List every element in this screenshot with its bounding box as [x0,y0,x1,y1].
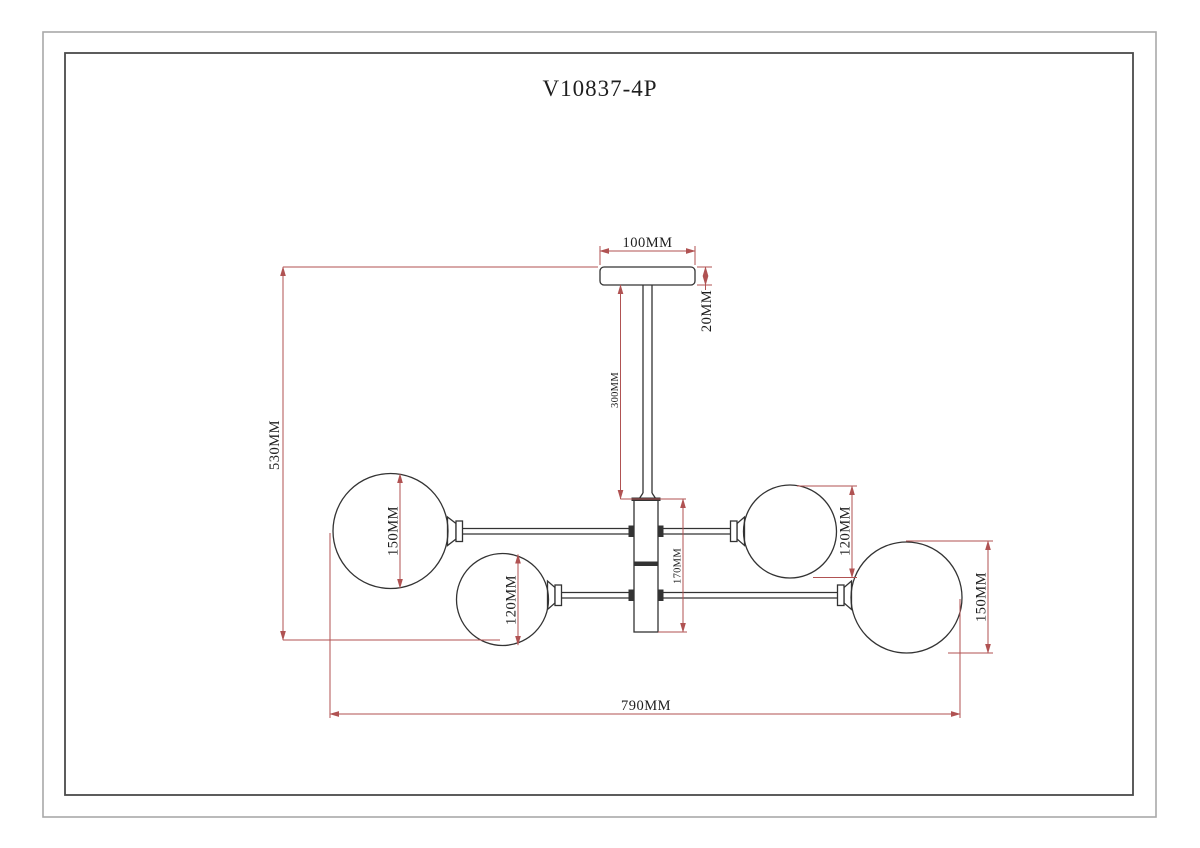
ceiling-canopy [600,267,695,285]
sheet-frame [43,32,1156,817]
label-overall-height: 530MM [267,420,283,470]
label-globe-small-right: 120MM [838,506,854,556]
inner-frame [65,53,1133,795]
label-hub-height: 170MM [673,548,684,584]
globe-small-left [457,554,549,646]
drawing-title: V10837-4P [542,76,657,101]
drawing-sheet: V10837-4P [0,0,1200,848]
socket-large-right [838,581,852,610]
stem-rod [639,285,656,499]
socket-small-left [548,581,562,610]
socket-small-right [731,517,745,546]
hub-divider [634,562,658,567]
label-rod-length: 300MM [610,372,621,408]
label-canopy-height: 20MM [699,290,715,332]
upper-arm-right [658,529,731,535]
lower-arm-left [561,593,634,599]
globe-small-right [744,485,837,578]
label-canopy-width: 100MM [622,235,672,251]
label-globe-small-left: 120MM [504,575,520,625]
technical-drawing: V10837-4P [0,0,1200,848]
label-overall-width: 790MM [621,698,671,714]
socket-large-left [448,517,463,546]
dimension-annotations [283,246,993,718]
lamp-fixture [333,267,962,653]
label-globe-large-left: 150MM [386,506,402,556]
dim-rod-length [621,285,687,499]
upper-arm-left [462,529,634,535]
lower-arm-right [658,593,837,599]
dimension-labels: 100MM 20MM 300MM 170MM 530MM 150MM 120MM… [267,235,990,714]
dim-canopy-height [697,267,712,290]
globe-large-right [851,542,962,653]
central-hub [632,498,661,633]
outer-frame [43,32,1156,817]
label-globe-large-right: 150MM [974,572,990,622]
